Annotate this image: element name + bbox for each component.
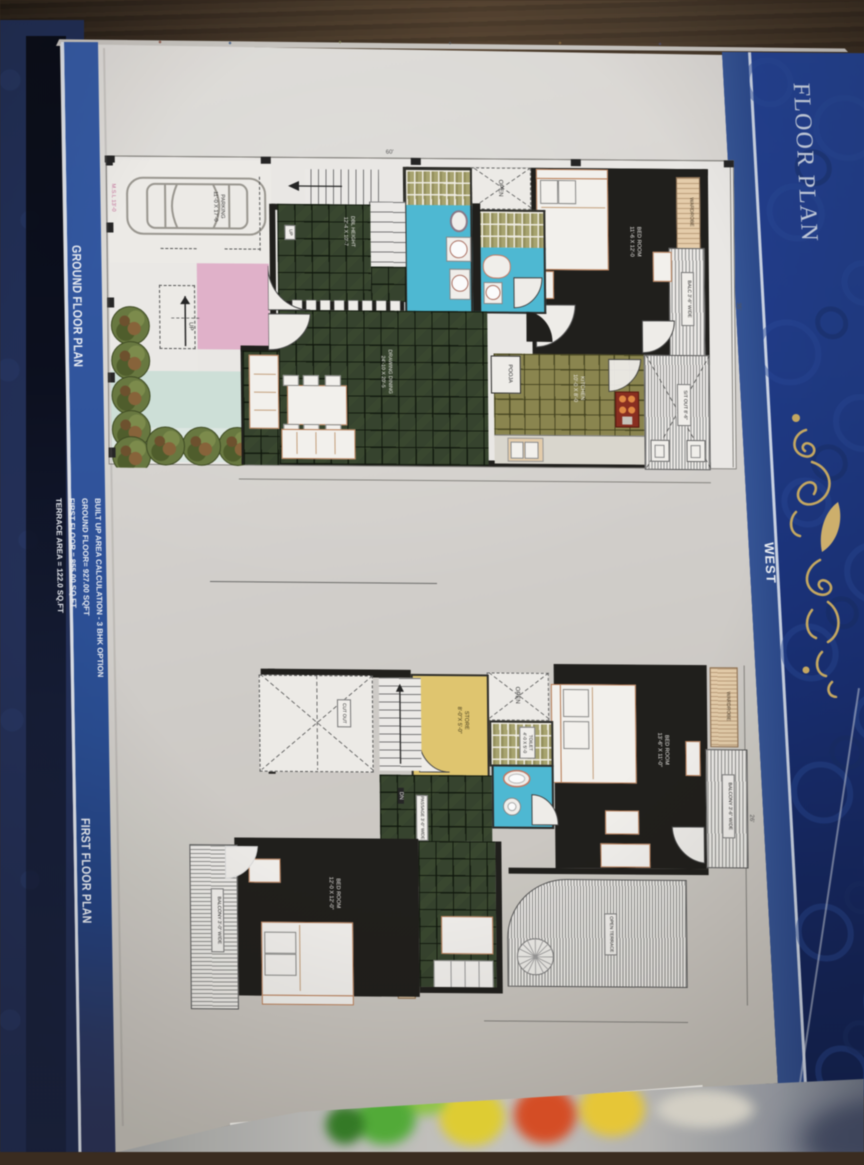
- svg-text:OPEN: OPEN: [497, 180, 503, 197]
- svg-text:OPEN: OPEN: [514, 687, 520, 704]
